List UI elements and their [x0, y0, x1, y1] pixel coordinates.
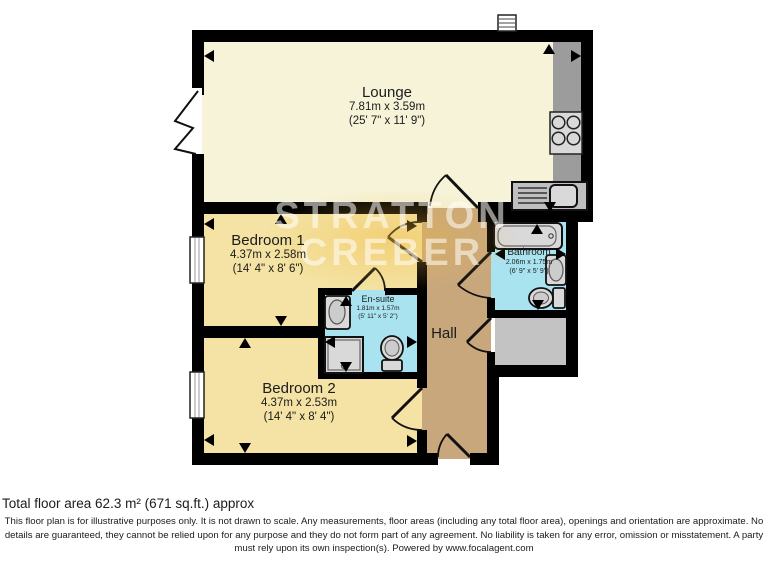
watermark: STRATTON CREBER	[274, 198, 509, 272]
watermark-line2: CREBER	[274, 235, 509, 272]
watermark-line1: STRATTON	[274, 198, 509, 235]
ensuite-label: En-suite 1.81m x 1.57m (5' 11" x 5' 2")	[357, 294, 400, 321]
bedroom1-window	[190, 237, 204, 283]
room-dims-metric: 7.81m x 3.59m	[349, 101, 425, 115]
room-name: Hall	[431, 325, 457, 342]
room-dims-imperial: (14' 4" x 8' 4")	[261, 411, 337, 425]
top-vent-window	[498, 15, 516, 31]
room-name: En-suite	[357, 294, 400, 305]
floorplan-page: STRATTON CREBER Lounge 7.81m x 3.59m (25…	[0, 0, 768, 576]
storage-floor	[495, 314, 566, 365]
bedroom1-label: Bedroom 1 4.37m x 2.58m (14' 4" x 8' 6")	[230, 232, 306, 276]
room-dims-imperial: (6' 9" x 5' 9")	[506, 268, 552, 277]
bathroom-toilet-icon	[529, 288, 565, 308]
lounge-label: Lounge 7.81m x 3.59m (25' 7" x 11' 9")	[349, 84, 425, 128]
bathroom-label: Bathroom 2.06m x 1.75m (6' 9" x 5' 9")	[506, 247, 552, 276]
room-dims-metric: 1.81m x 1.57m	[357, 305, 400, 313]
hall-label: Hall	[431, 325, 457, 342]
room-name: Bathroom	[506, 247, 552, 259]
ensuite-toilet-icon	[381, 336, 403, 371]
room-dims-imperial: (25' 7" x 11' 9")	[349, 115, 425, 129]
room-dims-metric: 4.37m x 2.53m	[261, 397, 337, 411]
room-name: Lounge	[349, 84, 425, 101]
bedroom2-label: Bedroom 2 4.37m x 2.53m (14' 4" x 8' 4")	[261, 380, 337, 424]
bedroom2-window	[190, 372, 204, 418]
total-floor-area: Total floor area 62.3 m² (671 sq.ft.) ap…	[2, 496, 254, 511]
room-dims-imperial: (14' 4" x 8' 6")	[230, 263, 306, 277]
room-dims-imperial: (5' 11" x 5' 2")	[357, 313, 400, 321]
room-name: Bedroom 1	[230, 232, 306, 249]
room-dims-metric: 2.06m x 1.75m	[506, 259, 552, 268]
disclaimer-text: This floor plan is for illustrative purp…	[0, 515, 768, 556]
room-dims-metric: 4.37m x 2.58m	[230, 249, 306, 263]
room-name: Bedroom 2	[261, 380, 337, 397]
